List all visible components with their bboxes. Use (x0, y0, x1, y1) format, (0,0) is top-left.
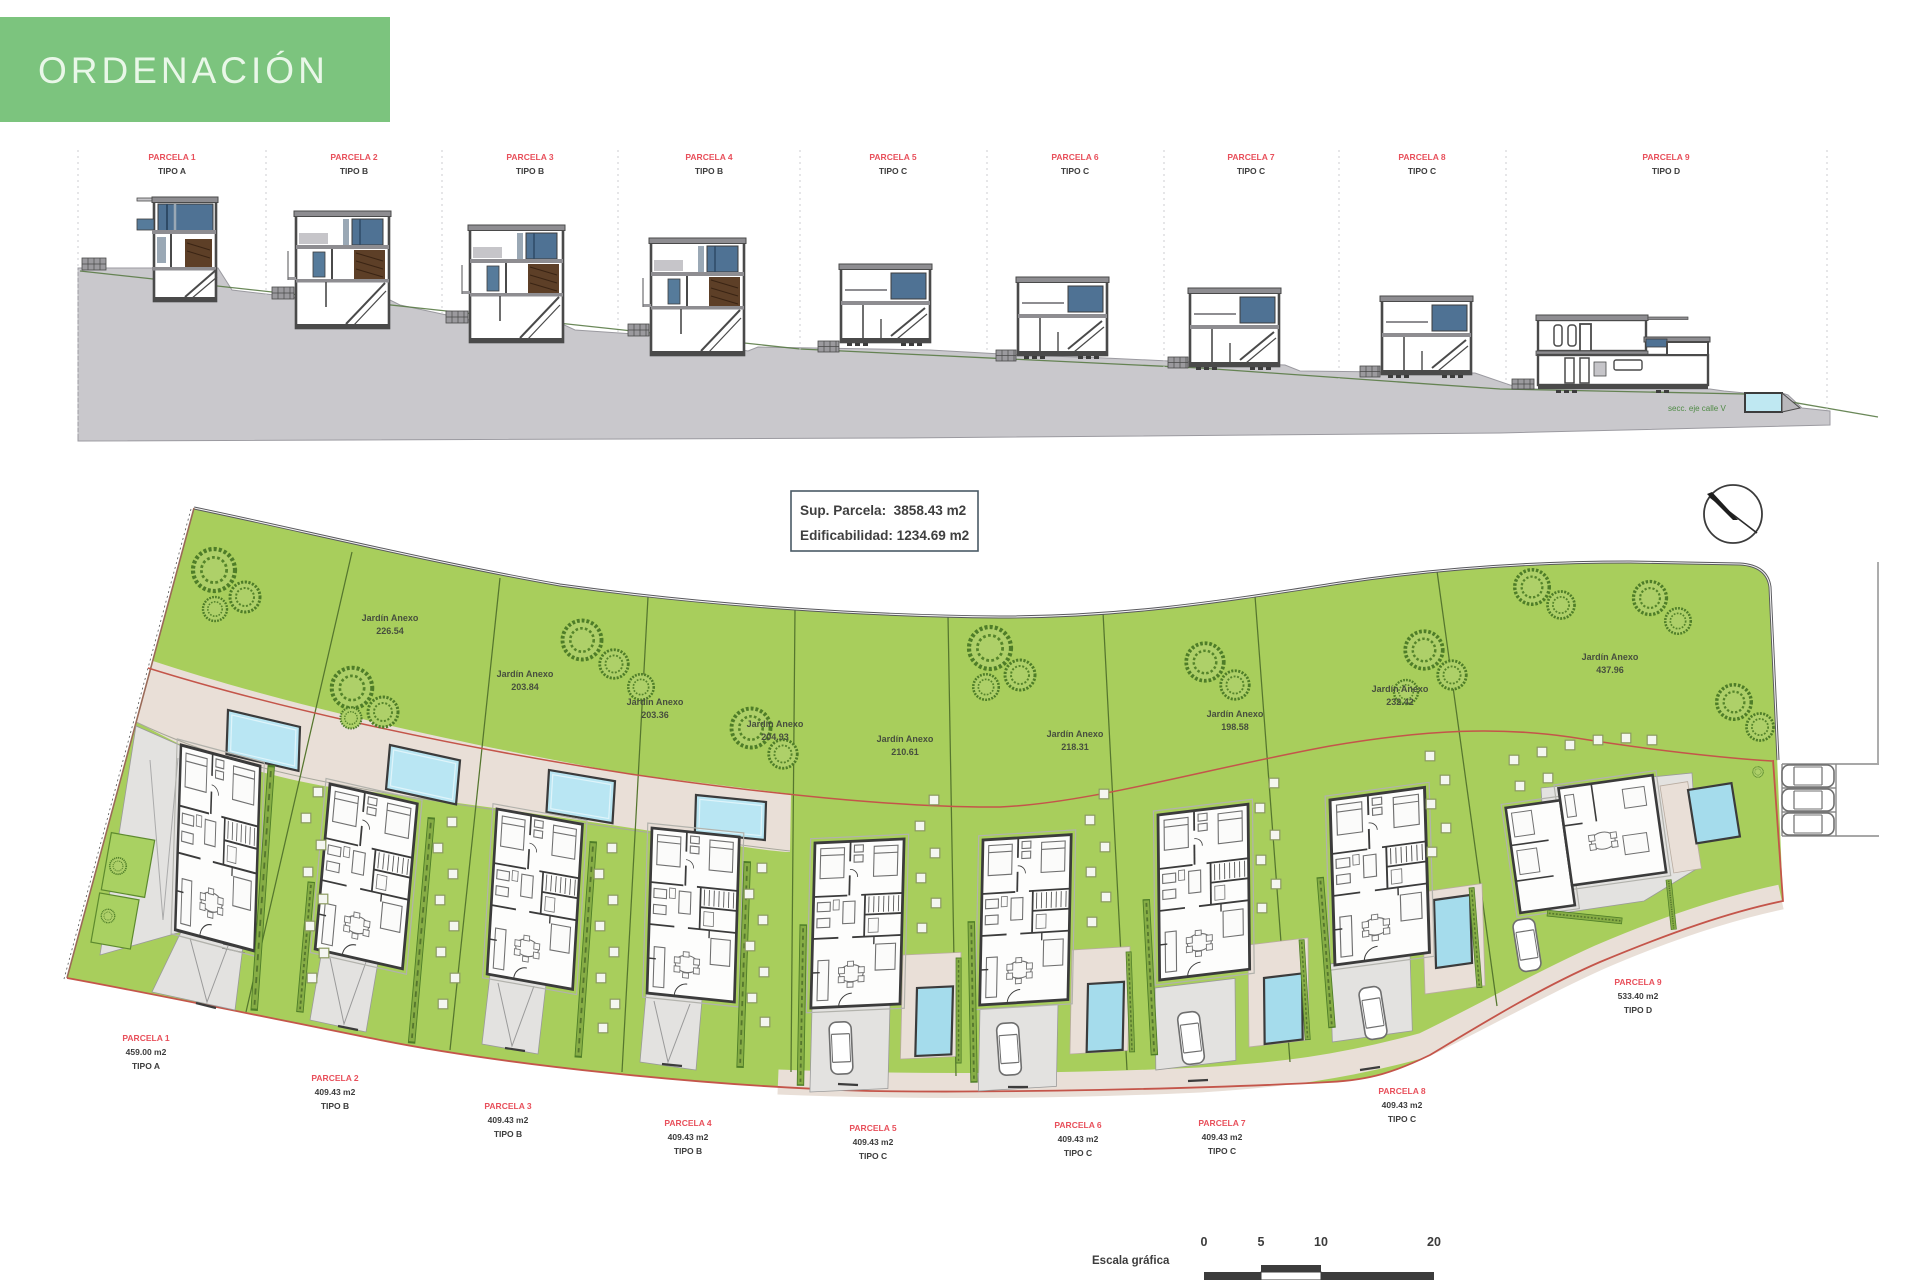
svg-text:204.93: 204.93 (761, 732, 789, 742)
svg-text:TIPO B: TIPO B (695, 166, 723, 176)
svg-text:PARCELA 7: PARCELA 7 (1198, 1118, 1246, 1128)
svg-text:Jardín Anexo: Jardín Anexo (497, 669, 554, 679)
svg-text:PARCELA 9: PARCELA 9 (1642, 152, 1690, 162)
svg-text:20: 20 (1427, 1235, 1441, 1249)
svg-text:Jardín Anexo: Jardín Anexo (747, 719, 804, 729)
svg-text:PARCELA 8: PARCELA 8 (1398, 152, 1446, 162)
svg-text:TIPO D: TIPO D (1624, 1005, 1652, 1015)
svg-text:437.96: 437.96 (1596, 665, 1624, 675)
svg-text:TIPO B: TIPO B (321, 1101, 349, 1111)
svg-text:PARCELA 2: PARCELA 2 (330, 152, 378, 162)
svg-text:459.00 m2: 459.00 m2 (126, 1047, 167, 1057)
svg-text:PARCELA 7: PARCELA 7 (1227, 152, 1275, 162)
svg-text:TIPO A: TIPO A (158, 166, 186, 176)
svg-text:TIPO B: TIPO B (340, 166, 368, 176)
svg-text:218.31: 218.31 (1061, 742, 1089, 752)
svg-text:Escala gráfica: Escala gráfica (1092, 1255, 1170, 1267)
svg-text:PARCELA 8: PARCELA 8 (1378, 1086, 1426, 1096)
svg-text:PARCELA 6: PARCELA 6 (1054, 1120, 1102, 1130)
svg-text:Jardín Anexo: Jardín Anexo (362, 613, 419, 623)
svg-text:secc. eje calle V: secc. eje calle V (1668, 404, 1726, 413)
svg-text:PARCELA 2: PARCELA 2 (311, 1073, 359, 1083)
svg-text:TIPO A: TIPO A (132, 1061, 160, 1071)
svg-text:PARCELA 1: PARCELA 1 (148, 152, 196, 162)
svg-text:226.54: 226.54 (376, 626, 404, 636)
svg-text:PARCELA 6: PARCELA 6 (1051, 152, 1099, 162)
svg-text:5: 5 (1258, 1235, 1265, 1249)
svg-text:210.61: 210.61 (891, 747, 919, 757)
svg-text:TIPO C: TIPO C (1064, 1148, 1092, 1158)
svg-text:TIPO B: TIPO B (494, 1129, 522, 1139)
svg-text:PARCELA 5: PARCELA 5 (869, 152, 917, 162)
svg-text:409.43 m2: 409.43 m2 (853, 1137, 894, 1147)
svg-text:Edificabilidad: 1234.69 m2: Edificabilidad: 1234.69 m2 (800, 528, 970, 543)
svg-text:198.58: 198.58 (1221, 722, 1249, 732)
svg-text:TIPO C: TIPO C (1237, 166, 1265, 176)
svg-text:PARCELA 4: PARCELA 4 (685, 152, 733, 162)
svg-text:Jardín Anexo: Jardín Anexo (1372, 684, 1429, 694)
svg-text:Jardín Anexo: Jardín Anexo (1582, 652, 1639, 662)
svg-text:TIPO C: TIPO C (1061, 166, 1089, 176)
svg-text:Sup. Parcela: 3858.43 m2: Sup. Parcela: 3858.43 m2 (800, 503, 967, 518)
svg-text:PARCELA 9: PARCELA 9 (1614, 977, 1662, 987)
svg-text:Jardín Anexo: Jardín Anexo (877, 734, 934, 744)
svg-text:PARCELA 1: PARCELA 1 (122, 1033, 170, 1043)
svg-text:PARCELA 4: PARCELA 4 (664, 1118, 712, 1128)
svg-text:409.43 m2: 409.43 m2 (668, 1132, 709, 1142)
svg-text:409.43 m2: 409.43 m2 (1202, 1132, 1243, 1142)
svg-text:PARCELA 5: PARCELA 5 (849, 1123, 897, 1133)
svg-text:10: 10 (1314, 1235, 1328, 1249)
svg-text:Jardín Anexo: Jardín Anexo (627, 697, 684, 707)
svg-text:203.84: 203.84 (511, 682, 539, 692)
svg-text:409.43 m2: 409.43 m2 (488, 1115, 529, 1125)
svg-text:TIPO B: TIPO B (674, 1146, 702, 1156)
svg-text:TIPO C: TIPO C (1388, 1114, 1416, 1124)
svg-text:409.43 m2: 409.43 m2 (1382, 1100, 1423, 1110)
svg-text:PARCELA 3: PARCELA 3 (506, 152, 554, 162)
svg-text:ORDENACIÓN: ORDENACIÓN (38, 50, 329, 91)
svg-text:409.43 m2: 409.43 m2 (315, 1087, 356, 1097)
svg-text:0: 0 (1201, 1235, 1208, 1249)
svg-text:TIPO D: TIPO D (1652, 166, 1680, 176)
svg-text:PARCELA 3: PARCELA 3 (484, 1101, 532, 1111)
svg-text:TIPO C: TIPO C (1208, 1146, 1236, 1156)
svg-text:TIPO C: TIPO C (859, 1151, 887, 1161)
svg-text:232.42: 232.42 (1386, 697, 1414, 707)
svg-text:TIPO B: TIPO B (516, 166, 544, 176)
svg-text:Jardín Anexo: Jardín Anexo (1047, 729, 1104, 739)
svg-text:TIPO C: TIPO C (879, 166, 907, 176)
svg-text:533.40 m2: 533.40 m2 (1618, 991, 1659, 1001)
svg-text:Jardín Anexo: Jardín Anexo (1207, 709, 1264, 719)
svg-text:409.43 m2: 409.43 m2 (1058, 1134, 1099, 1144)
svg-text:203.36: 203.36 (641, 710, 669, 720)
svg-text:TIPO C: TIPO C (1408, 166, 1436, 176)
